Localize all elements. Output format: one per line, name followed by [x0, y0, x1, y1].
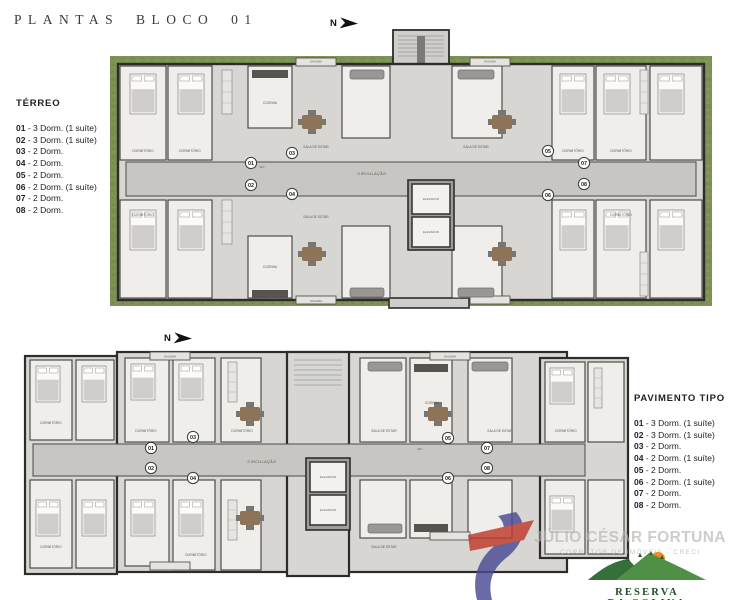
plan-room-label: DORMITÓRIO: [610, 212, 632, 217]
plan-room-label: DORMITÓRIO: [562, 148, 584, 153]
plan-room-label: DORMITÓRIO: [40, 544, 62, 549]
legend-item: 05 - 2 Dorm.: [16, 170, 97, 182]
plan-room-label: CIRCULAÇÃO: [248, 459, 277, 464]
svg-text:07: 07: [581, 161, 587, 167]
unit-number-badge: 07: [578, 157, 589, 168]
plan-room-label: COZINHA: [263, 101, 278, 105]
plan-room-label: SALA DE ESTAR: [371, 545, 397, 549]
plan-room-label: DORMITÓRIO: [610, 148, 632, 153]
pavimento-tipo-plan: ELEVADORELEVADOR0102030405060708CIRCULAÇ…: [25, 352, 628, 576]
plan-room-label: DORMITÓRIO: [185, 552, 207, 557]
unit-number-badge: 04: [187, 472, 198, 483]
plan-room-label: DORMITÓRIO: [135, 428, 157, 433]
plan-room-label: ELEVADOR: [423, 230, 440, 234]
plan-room-label: DORMITÓRIO: [132, 212, 154, 217]
plan-room-label: SALA DE ESTAR: [463, 145, 489, 149]
legend-item: 03 - 2 Dorm.: [634, 441, 725, 453]
legend-item: 06 - 2 Dorm. (1 suíte): [16, 182, 97, 194]
plan-room-label: SACADA: [484, 60, 496, 64]
svg-text:02: 02: [248, 183, 254, 189]
legend-item-desc: - 2 Dorm.: [25, 158, 63, 168]
plan-room-label: CIRCULAÇÃO: [358, 171, 387, 176]
svg-text:03: 03: [190, 435, 196, 441]
unit-number-badge: 08: [481, 462, 492, 473]
legend-item-desc: - 2 Dorm.: [643, 465, 681, 475]
plan-room-label: COZINHA: [263, 265, 278, 269]
north-label: N: [164, 333, 171, 344]
plan-room-label: WC: [418, 447, 424, 451]
legend-item-desc: - 2 Dorm. (1 suíte): [25, 182, 96, 192]
plan-room-label: ELEVADOR: [320, 508, 337, 512]
page-canvas: ELEVADORELEVADOR0102030405060708CIRCULAÇ…: [0, 0, 744, 600]
legend-pavimento-tipo: PAVIMENTO TIPO 01 - 3 Dorm. (1 suíte)02 …: [634, 393, 725, 512]
unit-number-badge: 05: [442, 432, 453, 443]
plan-room-label: ELEVADOR: [320, 475, 337, 479]
svg-text:03: 03: [289, 151, 295, 157]
mountains-logo-icon: [586, 548, 708, 582]
svg-text:08: 08: [484, 466, 490, 472]
legend-item-desc: - 2 Dorm.: [25, 146, 63, 156]
legend-item-desc: - 2 Dorm.: [25, 205, 63, 215]
svg-text:06: 06: [545, 193, 551, 199]
legend-item: 08 - 2 Dorm.: [16, 205, 97, 217]
legend-item-desc: - 2 Dorm.: [25, 170, 63, 180]
unit-number-badge: 01: [245, 157, 256, 168]
legend-item-desc: - 2 Dorm. (1 suíte): [643, 453, 714, 463]
plan-room-label: SALA DE ESTAR: [371, 429, 397, 433]
legend-terreo-items: 01 - 3 Dorm. (1 suíte)02 - 3 Dorm. (1 su…: [16, 123, 97, 217]
terreo-plan: ELEVADORELEVADOR0102030405060708CIRCULAÇ…: [110, 30, 712, 308]
svg-text:07: 07: [484, 446, 490, 452]
legend-item: 03 - 2 Dorm.: [16, 146, 97, 158]
plan-room-label: DORMITÓRIO: [40, 420, 62, 425]
unit-number-badge: 04: [286, 188, 297, 199]
legend-item: 01 - 3 Dorm. (1 suíte): [634, 418, 725, 430]
legend-item: 08 - 2 Dorm.: [634, 500, 725, 512]
plan-room-label: SACADA: [164, 355, 176, 359]
plan-room-label: WC: [260, 165, 266, 169]
unit-number-badge: 02: [145, 462, 156, 473]
unit-number-badge: 01: [145, 442, 156, 453]
legend-item-desc: - 3 Dorm. (1 suíte): [643, 418, 714, 428]
north-arrow-icon: [173, 331, 193, 345]
brand-name-line1: RESERVA: [584, 587, 710, 598]
plan-room-label: SACADA: [310, 299, 322, 303]
unit-number-badge: 03: [187, 431, 198, 442]
svg-text:01: 01: [248, 161, 254, 167]
plan-room-label: DORMITÓRIO: [132, 148, 154, 153]
legend-item: 02 - 3 Dorm. (1 suíte): [634, 430, 725, 442]
legend-item: 04 - 2 Dorm. (1 suíte): [634, 453, 725, 465]
reserva-da-colina-logo: RESERVA DA COLINA RESIDENCIAL: [584, 548, 710, 600]
legend-item-desc: - 2 Dorm.: [643, 441, 681, 451]
floor-plans-svg: ELEVADORELEVADOR0102030405060708CIRCULAÇ…: [0, 0, 744, 600]
svg-text:04: 04: [190, 476, 196, 482]
plan-room-label: DORMITÓRIO: [231, 428, 253, 433]
svg-text:05: 05: [545, 149, 551, 155]
legend-item-desc: - 3 Dorm. (1 suíte): [25, 135, 96, 145]
legend-item: 07 - 2 Dorm.: [634, 488, 725, 500]
plan-room-label: DORMITÓRIO: [555, 428, 577, 433]
svg-text:02: 02: [148, 466, 154, 472]
svg-text:01: 01: [148, 446, 154, 452]
north-arrow-bottom: N: [164, 331, 193, 345]
legend-item-desc: - 3 Dorm. (1 suíte): [643, 430, 714, 440]
legend-item: 07 - 2 Dorm.: [16, 193, 97, 205]
legend-item-desc: - 2 Dorm. (1 suíte): [643, 477, 714, 487]
north-arrow-icon: [339, 16, 359, 30]
legend-terreo-heading: TÉRREO: [16, 98, 97, 109]
unit-number-badge: 07: [481, 442, 492, 453]
legend-item: 02 - 3 Dorm. (1 suíte): [16, 135, 97, 147]
unit-number-badge: 03: [286, 147, 297, 158]
plan-room-label: SALA DE ESTAR: [303, 215, 329, 219]
svg-text:04: 04: [289, 192, 295, 198]
legend-pavimento-tipo-heading: PAVIMENTO TIPO: [634, 393, 725, 404]
north-label: N: [330, 18, 337, 29]
page-title: PLANTAS BLOCO 01: [14, 12, 258, 28]
legend-item-desc: - 2 Dorm.: [643, 488, 681, 498]
unit-number-badge: 08: [578, 178, 589, 189]
unit-number-badge: 06: [442, 472, 453, 483]
legend-item: 01 - 3 Dorm. (1 suíte): [16, 123, 97, 135]
unit-number-badge: 05: [542, 145, 553, 156]
legend-item: 04 - 2 Dorm.: [16, 158, 97, 170]
plan-room-label: SACADA: [444, 355, 456, 359]
legend-terreo: TÉRREO 01 - 3 Dorm. (1 suíte)02 - 3 Dorm…: [16, 98, 97, 217]
plan-room-label: SALA DE ESTAR: [303, 145, 329, 149]
unit-number-badge: 02: [245, 179, 256, 190]
unit-number-badge: 06: [542, 189, 553, 200]
svg-text:08: 08: [581, 182, 587, 188]
plan-room-label: COZINHA: [425, 401, 440, 405]
legend-item: 05 - 2 Dorm.: [634, 465, 725, 477]
plan-room-label: SALA DE ESTAR: [487, 429, 513, 433]
legend-pavimento-tipo-items: 01 - 3 Dorm. (1 suíte)02 - 3 Dorm. (1 su…: [634, 418, 725, 512]
legend-item-desc: - 2 Dorm.: [643, 500, 681, 510]
plan-room-label: SACADA: [310, 60, 322, 64]
legend-item-desc: - 2 Dorm.: [25, 193, 63, 203]
plan-room-label: ELEVADOR: [423, 197, 440, 201]
plan-room-label: DORMITÓRIO: [179, 148, 201, 153]
svg-text:06: 06: [445, 476, 451, 482]
north-arrow-top: N: [330, 16, 359, 30]
legend-item: 06 - 2 Dorm. (1 suíte): [634, 477, 725, 489]
legend-item-desc: - 3 Dorm. (1 suíte): [25, 123, 96, 133]
svg-text:05: 05: [445, 436, 451, 442]
